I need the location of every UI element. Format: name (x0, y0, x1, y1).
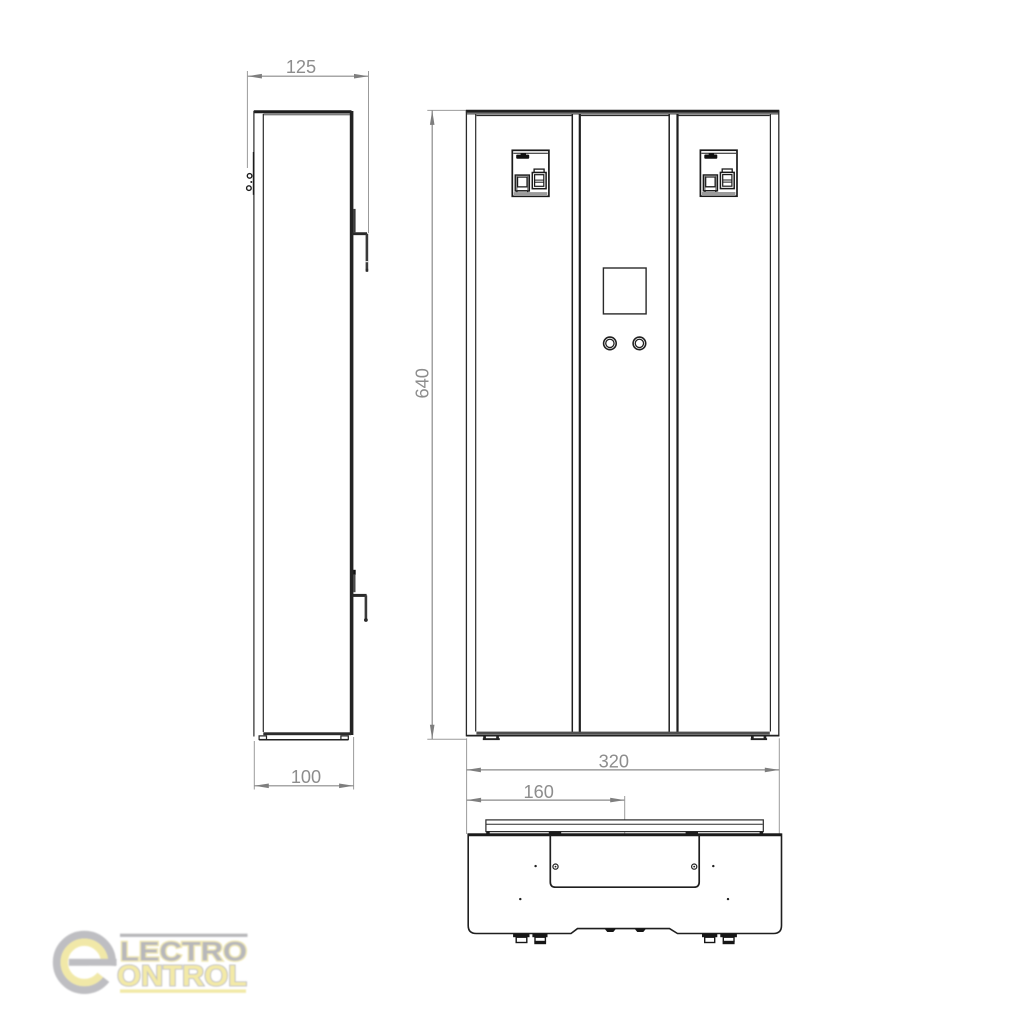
svg-text:640: 640 (413, 368, 433, 398)
svg-text:160: 160 (524, 782, 554, 802)
svg-text:125: 125 (286, 57, 316, 77)
svg-text:ONTROL: ONTROL (117, 961, 247, 993)
svg-text:320: 320 (599, 751, 629, 771)
svg-text:100: 100 (291, 767, 321, 787)
